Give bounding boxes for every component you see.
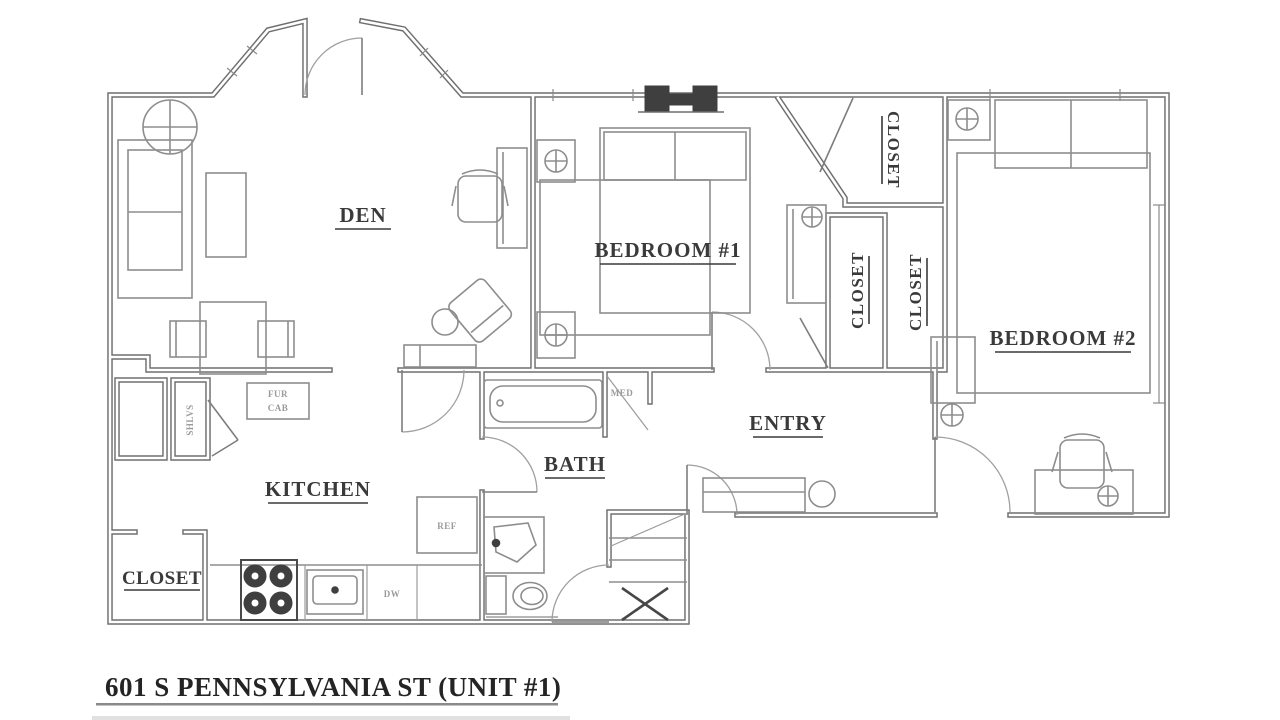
coffee-table: [206, 173, 246, 257]
furnace-cabinet-label-line1: FUR: [268, 389, 288, 399]
bath-label: BATH: [544, 452, 606, 476]
bedroom2-door-arc: [935, 437, 1010, 512]
entry-bay-door-arc: [305, 38, 362, 95]
desk-chair: [1052, 434, 1112, 488]
den-label: DEN: [339, 203, 386, 227]
kitchen-closet-label: CLOSET: [122, 568, 202, 589]
bedroom1-closet-label: CLOSET: [884, 111, 903, 189]
furnace-cabinet-label-line2: CAB: [268, 403, 289, 413]
desk: [1035, 470, 1133, 514]
entry-label: ENTRY: [749, 411, 827, 435]
side-table: [432, 309, 458, 335]
title-underline: [96, 703, 558, 706]
floorplan-page: DEN BEDROOM #1 BEDROOM #2 ENTRY KITCHEN …: [0, 0, 1280, 720]
kitchen-label: KITCHEN: [265, 477, 371, 501]
stove: [241, 560, 297, 620]
dishwasher-label: DW: [384, 589, 401, 599]
kitchen-hall-door-arc: [402, 370, 464, 432]
bath-fixtures: [484, 380, 602, 614]
window-ac-unit: [638, 86, 724, 112]
desk-chair: [452, 170, 508, 222]
bathtub: [484, 380, 602, 428]
nightstand-lamp: [948, 100, 990, 140]
kitchen-sink: [307, 570, 363, 614]
bedroom1-closet-label-group: CLOSET: [882, 111, 903, 189]
shelves-label: SHLVS: [185, 404, 195, 435]
hall-closet-right-label: CLOSET: [906, 253, 925, 331]
bedroom2-label: BEDROOM #2: [989, 326, 1136, 350]
entry-bench: [703, 478, 805, 512]
sofa: [118, 140, 192, 298]
ceiling-lamp-icon: [143, 100, 197, 154]
bath-door-arc: [482, 437, 537, 492]
hall-closet-left-label-group: CLOSET: [848, 251, 869, 329]
closet-bedroom1-door-leaf: [820, 98, 853, 172]
den-furniture: [118, 100, 527, 374]
dresser: [787, 205, 826, 303]
toilet: [486, 576, 547, 614]
nightstand-lamp: [537, 140, 575, 182]
bedroom2-furniture: [931, 100, 1150, 514]
plan-title: 601 S PENNSYLVANIA ST (UNIT #1): [105, 672, 561, 702]
hall-closet-right-label-group: CLOSET: [906, 253, 927, 331]
dining-table-and-chairs: [170, 302, 294, 374]
refrigerator-label: REF: [437, 521, 457, 531]
bath-stairs-door-arc: [552, 565, 609, 622]
staircase: [609, 513, 687, 620]
hall-closet-left-label: CLOSET: [848, 251, 867, 329]
medicine-shelf-diagonal: [607, 376, 648, 430]
closet-hall-door-leaf: [800, 318, 828, 368]
bedroom1-door-arc: [712, 312, 770, 370]
stairs-entry-door-arc: [687, 465, 737, 515]
kitchen-closet-door-leaf: [208, 400, 238, 440]
medicine-cabinet-label: MED: [611, 388, 634, 398]
cropped-text-line: [92, 716, 570, 720]
entry-stool: [809, 481, 835, 507]
entry-furniture: [703, 478, 835, 512]
bedroom1-furniture: [537, 86, 826, 358]
bedroom1-label: BEDROOM #1: [594, 238, 741, 262]
bathroom-sink: [484, 517, 544, 573]
armchair: [432, 277, 514, 345]
kitchen-closet-door-leaf2: [212, 440, 238, 456]
bed-bedroom1: [540, 128, 750, 335]
room-labels: DEN BEDROOM #1 BEDROOM #2 ENTRY KITCHEN …: [122, 111, 1137, 590]
title-block: 601 S PENNSYLVANIA ST (UNIT #1): [92, 672, 570, 720]
low-cabinet: [404, 345, 476, 367]
floorplan-drawing: DEN BEDROOM #1 BEDROOM #2 ENTRY KITCHEN …: [0, 0, 1280, 720]
shelves-label-group: SHLVS: [185, 404, 195, 435]
